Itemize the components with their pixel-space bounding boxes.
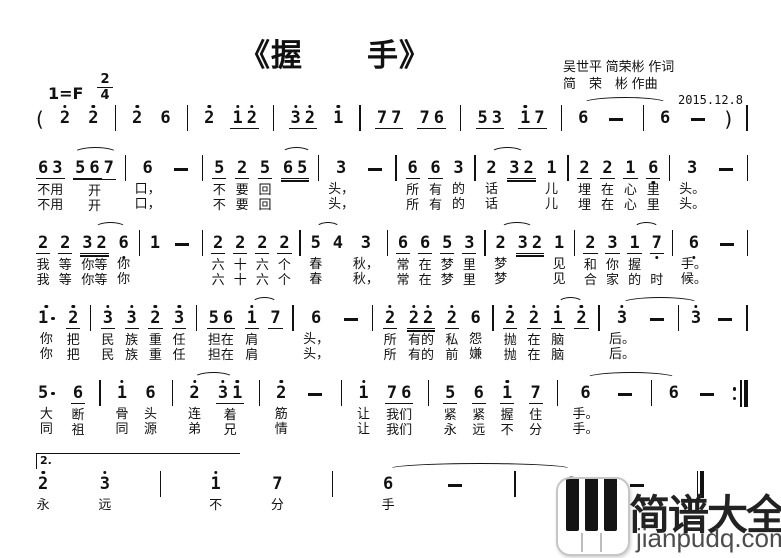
note: 2 — [577, 154, 591, 179]
lyric-text: 握 — [628, 257, 641, 272]
lyric-text: 开 — [88, 198, 101, 213]
duration-dash — [448, 484, 462, 487]
note: 5 — [258, 154, 272, 179]
octave-dot-high — [250, 105, 253, 108]
note: 3 — [615, 304, 629, 328]
barline-mark — [643, 105, 644, 131]
duration-dash — [308, 393, 322, 396]
lyric-text: 在 — [527, 347, 540, 362]
barline — [115, 104, 116, 131]
barline-mark — [492, 305, 493, 331]
note-column: 3你家 — [605, 229, 619, 287]
barline — [747, 154, 748, 181]
note-group — [169, 154, 193, 171]
lyric-text: 握 — [501, 407, 514, 422]
note-group: 7 — [270, 470, 284, 494]
lyric-text: 常 — [397, 272, 410, 287]
note-group: 1 — [36, 304, 57, 328]
note-column — [713, 304, 737, 354]
note: 1 — [331, 104, 345, 128]
lyric-text: 紧 — [472, 407, 485, 422]
note-group: 1 — [544, 154, 558, 178]
lyric-text: 我 — [37, 272, 50, 287]
note-group: 6 — [576, 104, 590, 128]
note: 7 — [385, 379, 399, 403]
lyric-text: 梦 — [441, 257, 454, 272]
note-column: 2连弟 — [187, 379, 201, 436]
octave-dot-high — [214, 471, 217, 474]
duration-dash — [691, 118, 705, 121]
note-column — [695, 379, 719, 429]
note-group: 6 — [71, 379, 85, 404]
note-group: 3 — [689, 304, 703, 328]
note: 1 — [552, 229, 566, 253]
lyric-text: 有 — [429, 197, 442, 212]
lyric-text: 重 — [149, 347, 162, 362]
lyric-text: 族 — [125, 347, 138, 362]
barline — [359, 104, 360, 131]
note-group: 6 — [687, 229, 701, 253]
note-group: 5 — [258, 154, 272, 179]
barline-mark — [372, 305, 373, 331]
note-column: 7住分 — [529, 379, 543, 437]
lyric-text: 秋， — [353, 271, 379, 286]
barline — [557, 379, 558, 406]
lyric-text: 远 — [472, 422, 485, 437]
note-column: 3的的 — [451, 154, 465, 211]
piano-key-divider — [581, 533, 583, 552]
note-column: 567开开 — [73, 154, 116, 213]
note: 2 — [36, 229, 50, 254]
lyric-text: 头 — [144, 406, 157, 421]
note-column: 2重重 — [148, 304, 162, 362]
note-column: 17 — [518, 104, 547, 129]
note: 3 — [689, 304, 703, 328]
barline — [669, 154, 670, 181]
lyric-text: 所 — [406, 182, 419, 197]
lyric-text: 里 — [647, 197, 660, 212]
note-column: 6有有 — [428, 154, 442, 212]
lyric-text: 头， — [303, 331, 329, 346]
barline-mark — [733, 380, 748, 407]
note-column: 6所所 — [406, 154, 420, 212]
note-group: 6 — [646, 154, 660, 179]
note: 6 — [399, 379, 413, 403]
note-group: 56 — [207, 304, 236, 329]
note: 2 — [255, 229, 269, 254]
note-group: 6 — [143, 379, 157, 403]
note-column: 3秋，秋， — [353, 229, 379, 286]
note-group — [170, 229, 194, 246]
note-group: 3 — [98, 470, 112, 494]
page-title: 《握 手》 — [115, 30, 555, 75]
barline — [341, 379, 342, 406]
note: 6 — [428, 154, 442, 179]
note-group: 6 — [418, 229, 432, 254]
note-group: 5 — [36, 379, 57, 403]
lyric-text: 手。 — [573, 421, 599, 436]
note-group: 6 — [406, 154, 420, 179]
octave-dot-high — [532, 305, 535, 308]
note: 6 — [578, 379, 592, 403]
barline-mark — [598, 305, 599, 331]
note-group: 3 — [605, 229, 619, 254]
note: 6 — [71, 379, 85, 404]
barline-mark — [341, 380, 342, 406]
lyric-text: 你 — [606, 257, 619, 272]
note: 2 — [445, 304, 459, 329]
barline — [561, 104, 562, 131]
meter-numerator: 2 — [97, 73, 112, 88]
note: 1 — [115, 379, 129, 403]
lyric-text: 心 — [624, 197, 637, 212]
note-column: 65 — [281, 154, 310, 212]
note: 2 — [421, 304, 435, 329]
note-group: 6 — [468, 304, 482, 328]
slur-arc — [95, 222, 127, 234]
note-column: 6手。手。 — [573, 379, 599, 436]
note-group: 53 — [476, 104, 505, 129]
note-column: 32 — [507, 154, 536, 212]
lyric-text: 重 — [149, 332, 162, 347]
duration-dash — [718, 318, 732, 321]
lyric-text: 断 — [71, 407, 84, 422]
barline — [172, 379, 173, 406]
lyric-text: 等 — [59, 272, 72, 287]
barline-mark — [139, 230, 140, 256]
barline-mark — [292, 305, 293, 331]
octave-dot-high — [620, 305, 623, 308]
note-group — [303, 379, 327, 396]
note: 7 — [270, 470, 284, 494]
note-group: 2 — [202, 104, 216, 128]
note-column: 5春春 — [309, 229, 323, 286]
note-column: 31着兄 — [216, 379, 245, 437]
note-column: 3远 — [98, 470, 112, 512]
note-column: 2埋埋 — [577, 154, 591, 212]
octave-dot-high — [280, 380, 283, 383]
lyric-text: 抛 — [504, 332, 517, 347]
note: 5 — [207, 304, 221, 328]
note-column — [645, 304, 669, 354]
lyric-text: 担在 — [208, 347, 234, 362]
note: 2 — [202, 104, 216, 128]
lyric-text: 头。 — [679, 181, 705, 196]
note: 5 — [440, 229, 454, 254]
note: 5 — [476, 104, 490, 128]
lyric-text: 里 — [463, 272, 476, 287]
note-column: 2要要 — [235, 154, 249, 212]
note-column: 6头，头， — [303, 304, 329, 361]
lyric-text: 脑 — [551, 332, 564, 347]
note-column: 2等等 — [58, 229, 72, 287]
note: 2 — [383, 304, 397, 329]
note: 2 — [530, 229, 544, 254]
barline-mark — [651, 380, 652, 406]
note-column: 32你等你等 — [80, 229, 109, 287]
lyric-text: 怨 — [469, 331, 482, 346]
note: 2 — [245, 104, 259, 128]
note: 6 — [406, 154, 420, 179]
lyric-text: 里 — [463, 257, 476, 272]
note: 1 — [208, 470, 222, 494]
lyric-text: 口， — [135, 196, 161, 211]
note: 3 — [605, 229, 619, 254]
note-group: 32 — [289, 104, 318, 129]
note-column: 2筋情 — [274, 379, 288, 436]
note-group: 77 — [375, 104, 404, 129]
note-group: 2 — [36, 229, 50, 254]
note-column: 6紧远 — [472, 379, 486, 437]
note-group: 1 — [148, 229, 162, 253]
octave-dot-high — [120, 380, 123, 383]
note-group: 5 — [443, 379, 457, 404]
note-column: 1骨同 — [115, 379, 129, 436]
note: 6 — [468, 304, 482, 328]
lyric-text: 梦 — [441, 272, 454, 287]
barline — [99, 379, 100, 406]
note: 6 — [396, 229, 410, 254]
barline-mark — [746, 105, 747, 131]
lyric-text: 筋 — [275, 406, 288, 421]
note: 2 — [66, 304, 80, 329]
note-group: 6 — [396, 229, 410, 254]
duration-dash — [174, 168, 188, 171]
note-column: 2个个 — [277, 229, 291, 287]
note: 6 — [309, 304, 323, 328]
octave-dot-high — [505, 380, 508, 383]
note: 2 — [503, 304, 517, 329]
note-group — [339, 304, 363, 321]
note-column: 32 — [289, 104, 318, 129]
slur-arc — [622, 297, 698, 309]
barline-mark — [567, 155, 568, 181]
barline-mark — [359, 105, 360, 131]
barline — [492, 304, 493, 331]
note-group: 6 — [309, 304, 323, 328]
note-column: 6在在 — [418, 229, 432, 287]
note-group: 2 — [148, 304, 162, 329]
piano-black-key — [585, 479, 598, 531]
lyric-text: 头， — [303, 346, 329, 361]
lyric-text: 等 — [59, 257, 72, 272]
lyric-text: 民 — [101, 347, 114, 362]
note-column: 7时 — [650, 229, 664, 287]
barline — [292, 304, 293, 331]
barline — [395, 154, 396, 181]
note-column: 1肩肩 — [245, 304, 259, 362]
note-column: 53 — [476, 104, 505, 129]
note-column: 2 — [202, 104, 216, 128]
note: 2 — [58, 229, 72, 254]
lyric-text: 有的 — [408, 332, 434, 347]
lyric-text: 我 — [37, 257, 50, 272]
note-group: 6 — [658, 104, 672, 128]
note-group: 2 — [86, 104, 100, 128]
note-group: 6 — [381, 470, 395, 494]
note-group: 7 — [529, 379, 543, 404]
lyric-text: 手 — [382, 497, 395, 512]
barline — [484, 229, 485, 256]
lyric-text: 紧 — [444, 407, 457, 422]
note: 2 — [36, 470, 50, 494]
note: 2 — [277, 229, 291, 254]
slur-arc — [586, 372, 676, 384]
note-column: 5回回 — [258, 154, 272, 212]
slur-arc — [491, 147, 524, 159]
note-column: 6手 — [381, 470, 395, 512]
note: 3 — [462, 229, 476, 254]
lyric-text: 你 — [40, 346, 53, 361]
note: 1 — [148, 229, 162, 253]
barline — [187, 104, 188, 131]
lyric-text: 有的 — [408, 347, 434, 362]
duration-dash — [700, 393, 714, 396]
barline-mark — [460, 105, 461, 131]
note-group: 76 — [417, 104, 446, 129]
barline-mark — [672, 230, 673, 256]
note-group: 2 — [277, 229, 291, 254]
octave-dot-high — [103, 471, 106, 474]
note-group: 2 — [527, 304, 541, 329]
lyric-text: 的 — [452, 196, 465, 211]
note-column: 32 — [516, 229, 545, 287]
lyric-text: 合 — [584, 272, 597, 287]
barline-mark — [90, 305, 91, 331]
lyric-text: 春 — [309, 271, 322, 286]
credits-composer: 简 荣 彬 作曲 — [563, 75, 753, 92]
note-column: 6口，口， — [135, 154, 161, 211]
duration-dash — [175, 243, 189, 246]
lyric-text: 不 — [213, 197, 226, 212]
music-system-intro: (22262123217776531766) — [36, 104, 748, 133]
lyric-text: 不 — [209, 497, 222, 512]
note-column: 7分 — [270, 470, 284, 512]
note: 1 — [356, 379, 370, 403]
lyric-text: 春 — [309, 256, 322, 271]
note-column: 1你你 — [36, 304, 57, 361]
note: 6 — [646, 154, 660, 179]
lyric-text: 的 — [628, 272, 641, 287]
note-group: 2 — [274, 379, 288, 403]
slur-arc — [252, 297, 277, 309]
lyric-text: 让 — [357, 421, 370, 436]
barline — [332, 470, 333, 497]
slur-arc — [558, 297, 583, 309]
note-group: 3 — [615, 304, 629, 328]
note-group: 1 — [115, 379, 129, 403]
lyric-text: 常 — [397, 257, 410, 272]
duration-dash — [344, 318, 358, 321]
barline — [202, 229, 203, 256]
note-group: 3 — [101, 304, 115, 329]
note: 3 — [172, 304, 186, 329]
repeat-dots — [733, 380, 736, 407]
note-column: 2 — [130, 104, 144, 128]
note-column: 2私前 — [445, 304, 459, 362]
note-column: 22有的有的 — [407, 304, 436, 362]
note: 6 — [418, 229, 432, 254]
barline — [387, 229, 388, 256]
note-group: 12 — [230, 104, 259, 129]
barline-mark — [747, 155, 748, 181]
note: 3 — [685, 154, 699, 178]
note-group — [363, 154, 387, 171]
octave-dot-low — [655, 256, 658, 259]
octave-dot-high — [130, 305, 133, 308]
note: 6 — [687, 229, 701, 253]
barline-mark — [474, 155, 475, 181]
note-column: 6 — [658, 104, 672, 128]
piano-icon — [556, 477, 630, 556]
slur-arc — [316, 222, 340, 234]
note: 1 — [230, 104, 244, 128]
barline — [299, 229, 300, 256]
lyric-text: 住 — [529, 407, 542, 422]
note-column: 2所所 — [383, 304, 397, 362]
octave-dot-high — [45, 305, 48, 308]
note: 1 — [623, 154, 637, 179]
note-column: 6常常 — [396, 229, 410, 287]
note-group: 1 — [331, 104, 345, 128]
phrase-paren-close: ) — [724, 104, 732, 133]
note-column: 6手。候。 — [681, 229, 707, 286]
note-column: 6 — [158, 104, 172, 128]
barline-mark — [678, 305, 679, 331]
note-group: 2 — [445, 304, 459, 329]
note: 6 — [432, 104, 446, 128]
note: 3 — [490, 104, 504, 128]
augmentation-dot — [51, 317, 54, 320]
octave-dot-high — [362, 380, 365, 383]
octave-dot-high — [177, 305, 180, 308]
note-group: 6 — [667, 379, 681, 403]
music-system-line3: 1你你2把把3民民3族族2重重3任任56担在担在1肩肩76头，头，2所所22有的… — [36, 304, 748, 362]
lyric-text: 民 — [101, 332, 114, 347]
note-column: 3民民 — [101, 304, 115, 362]
note-column: 2梦梦 — [494, 229, 508, 286]
lyric-text: 心 — [624, 182, 637, 197]
lyric-text: 肩 — [245, 347, 258, 362]
lyric-text: 儿 — [545, 181, 558, 196]
lyric-text: 永 — [37, 497, 50, 512]
barline — [567, 154, 568, 181]
note: 5 — [36, 379, 57, 403]
note-column: 1 — [331, 104, 345, 128]
note-column — [303, 379, 327, 429]
slur-arc — [388, 463, 572, 475]
barline-mark — [273, 105, 274, 131]
note-group — [686, 104, 710, 121]
note-group: 2 — [58, 104, 72, 128]
note-group — [714, 154, 738, 171]
note-column: 76我们我们 — [385, 379, 414, 437]
lyric-text: 回 — [259, 182, 272, 197]
barline-mark — [187, 105, 188, 131]
note-column: 3 — [689, 304, 703, 361]
note-group: 1 — [552, 229, 566, 253]
barline-mark — [196, 305, 197, 331]
lyric-text: 我们 — [386, 422, 412, 437]
lyric-text: 要 — [236, 182, 249, 197]
note-group: 1 — [623, 154, 637, 179]
note: 2 — [86, 104, 100, 128]
note-column: 6里里 — [646, 154, 660, 212]
lyric-text: 在 — [419, 272, 432, 287]
barline-mark — [125, 155, 126, 181]
note-column — [715, 229, 739, 279]
note-column: 2 — [58, 104, 72, 128]
